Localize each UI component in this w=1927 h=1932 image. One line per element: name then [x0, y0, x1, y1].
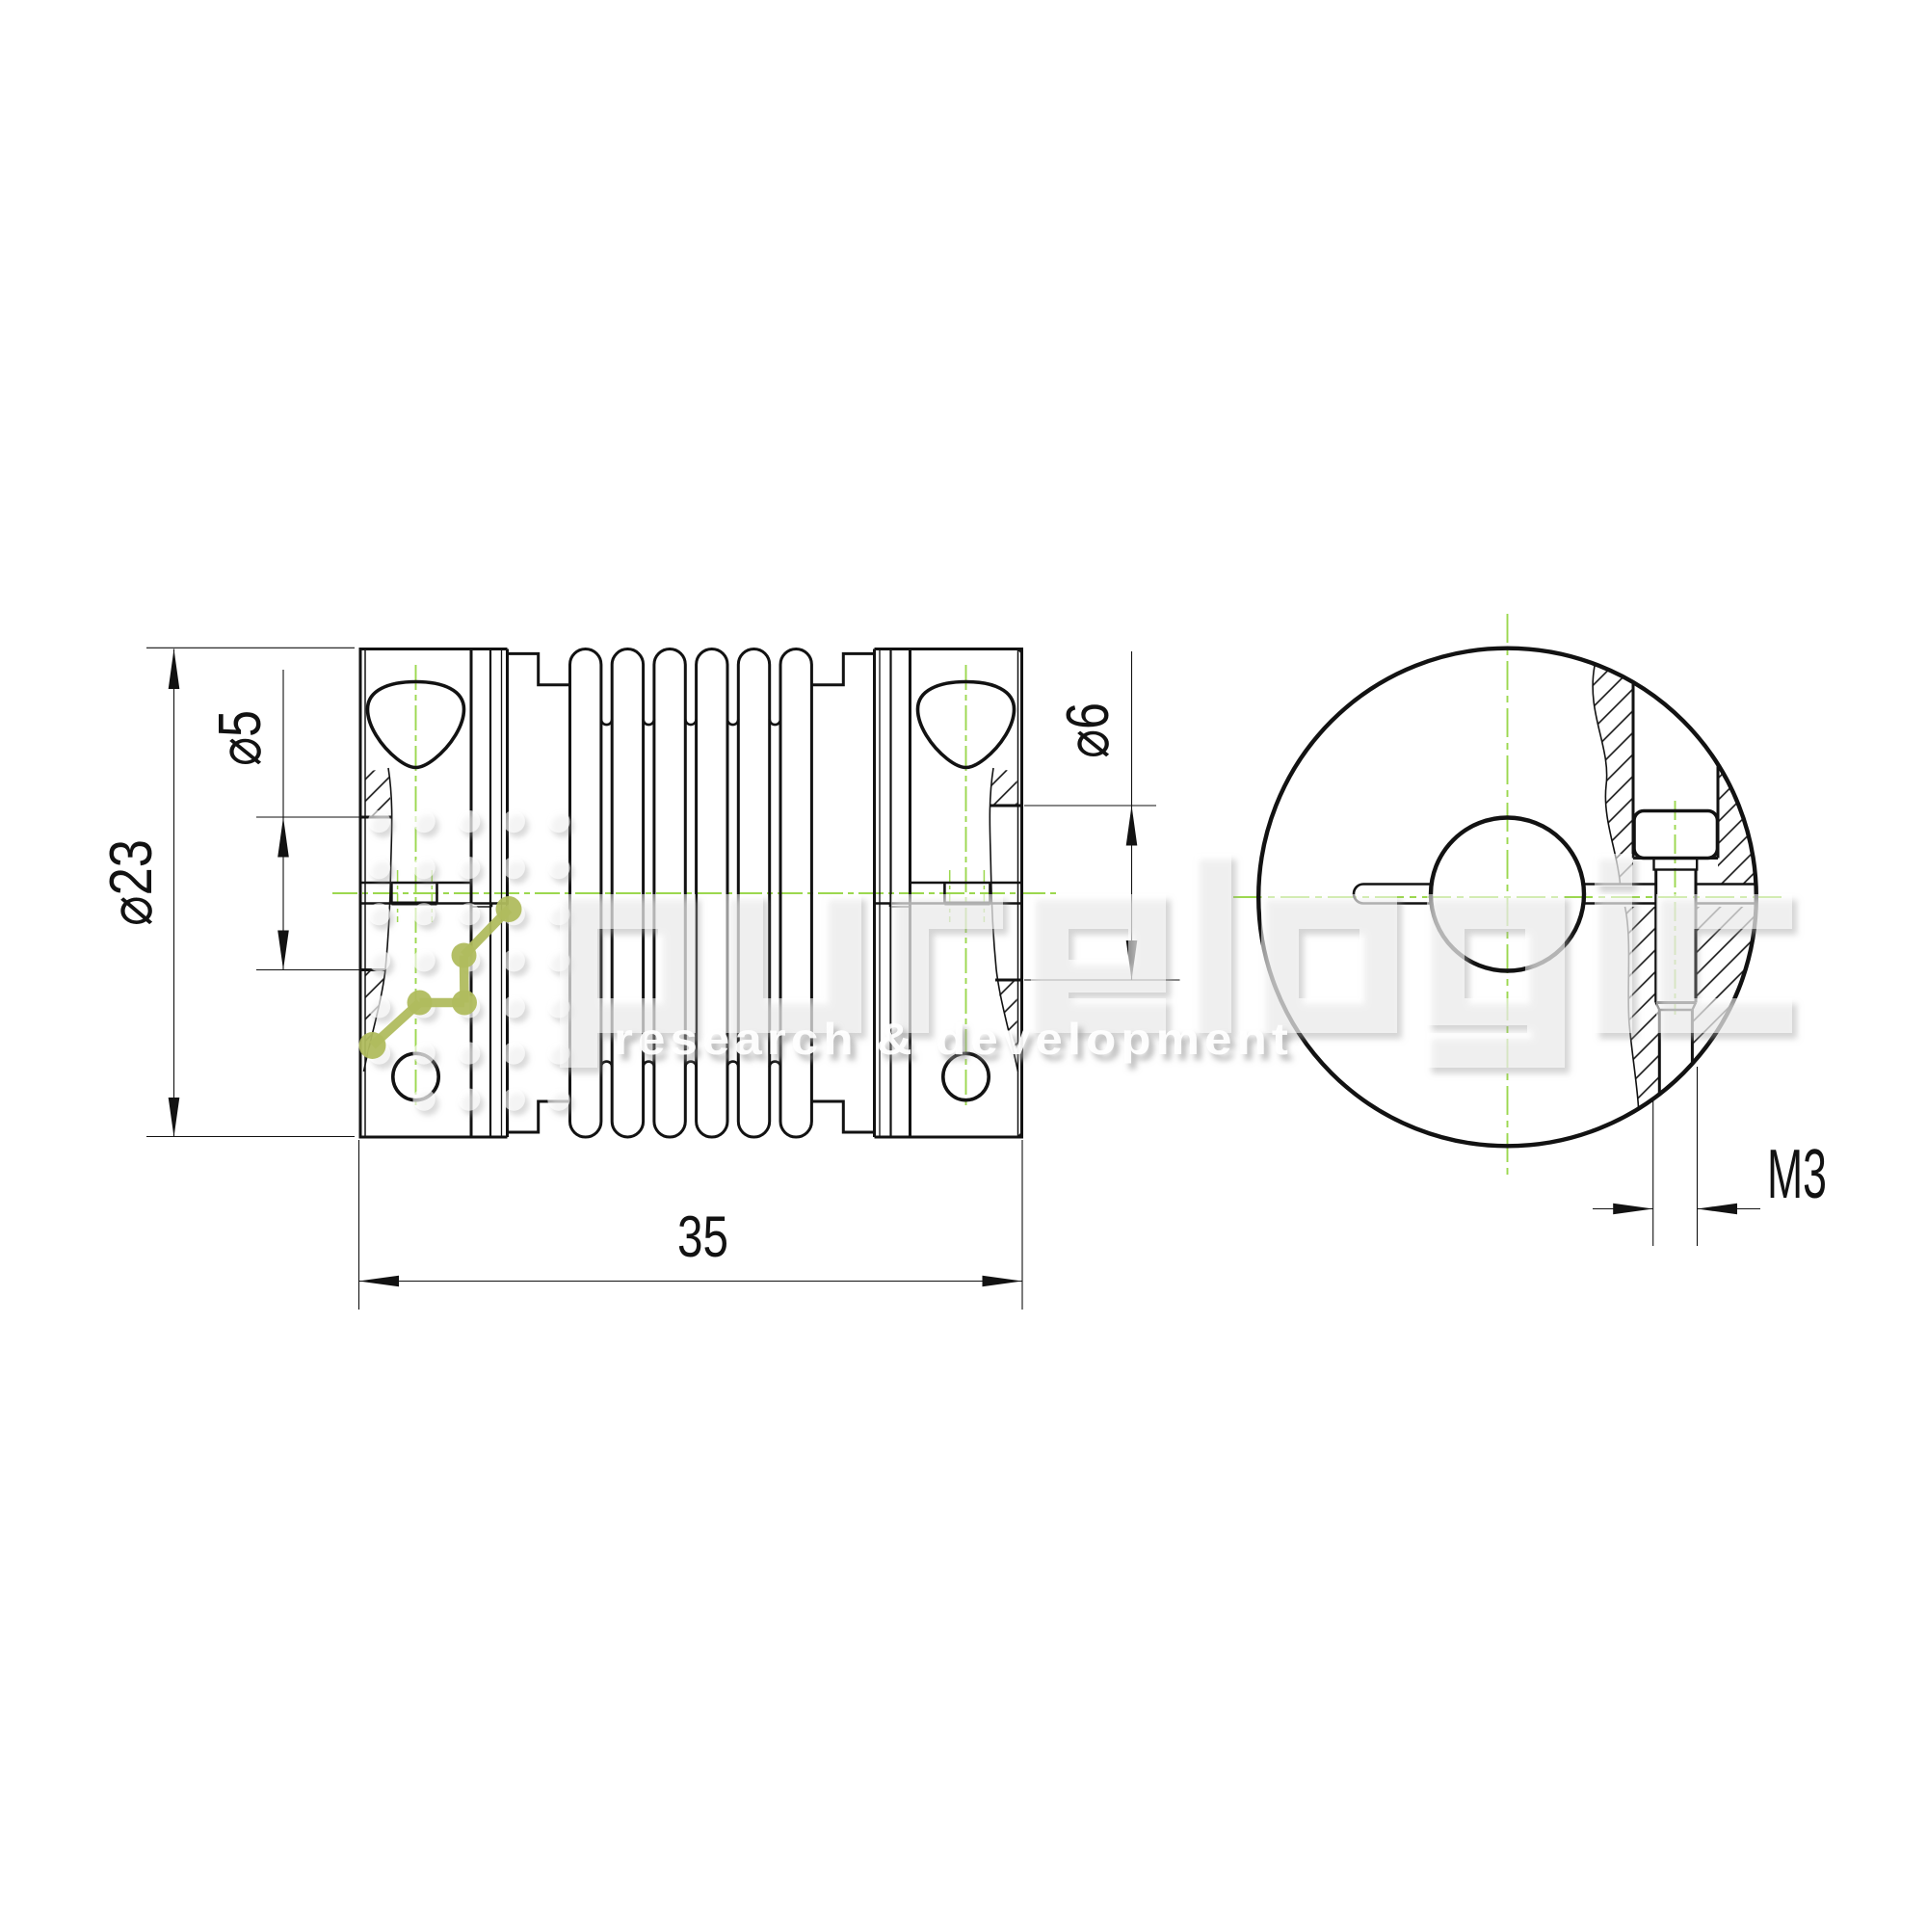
- svg-text:35: 35: [677, 1204, 728, 1269]
- svg-text:M3: M3: [1767, 1136, 1827, 1213]
- svg-text:research & development: research & development: [614, 1014, 1293, 1064]
- svg-text:⌀23: ⌀23: [98, 839, 165, 926]
- svg-text:⌀6: ⌀6: [1055, 702, 1122, 758]
- svg-text:⌀5: ⌀5: [207, 710, 274, 766]
